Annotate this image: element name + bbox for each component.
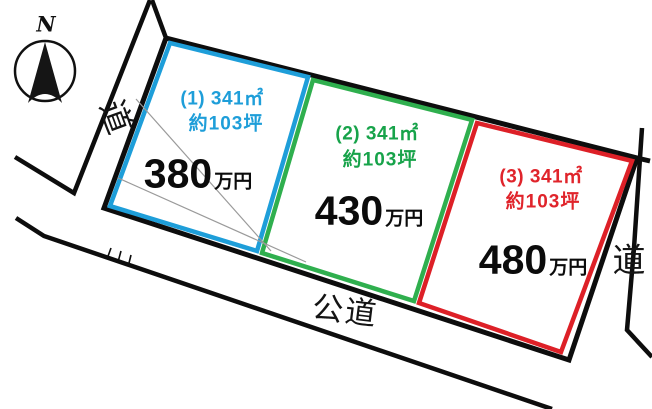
left-road-inner-line [152, 0, 166, 38]
plot-2-tsubo-label: 約103坪 [343, 151, 418, 170]
plot-3-tsubo-label: 約103坪 [506, 193, 581, 212]
land-plot-diagram: N 道 道 公道 (1) 341㎡ 約103坪 380 万円 (2) 341㎡ … [0, 0, 652, 409]
plot-2-price-unit: 万円 [385, 210, 423, 229]
plot-3-price-value: 480 [479, 240, 547, 281]
plot-2-price: 430 万円 [315, 191, 423, 232]
plot-1-price: 380 万円 [144, 154, 252, 195]
plot-1-area-label: (1) 341㎡ [180, 90, 263, 109]
plot-1-price-unit: 万円 [214, 173, 252, 192]
right-road-label: 道 [613, 244, 646, 277]
plot-2-price-value: 430 [315, 191, 383, 232]
boundary-tick-3 [129, 255, 131, 263]
plot-3-price-unit: 万円 [549, 259, 587, 278]
plot-3-price: 480 万円 [479, 240, 587, 281]
compass-needle-icon [28, 42, 62, 103]
plot-3-area-label: (3) 341㎡ [499, 168, 582, 187]
compass-north-label: N [36, 14, 55, 35]
plot-2-area-label: (2) 341㎡ [335, 125, 418, 144]
plot-1-price-value: 380 [144, 154, 212, 195]
public-road-label: 公道 [310, 293, 379, 332]
plot-1-tsubo-label: 約103坪 [189, 115, 264, 134]
